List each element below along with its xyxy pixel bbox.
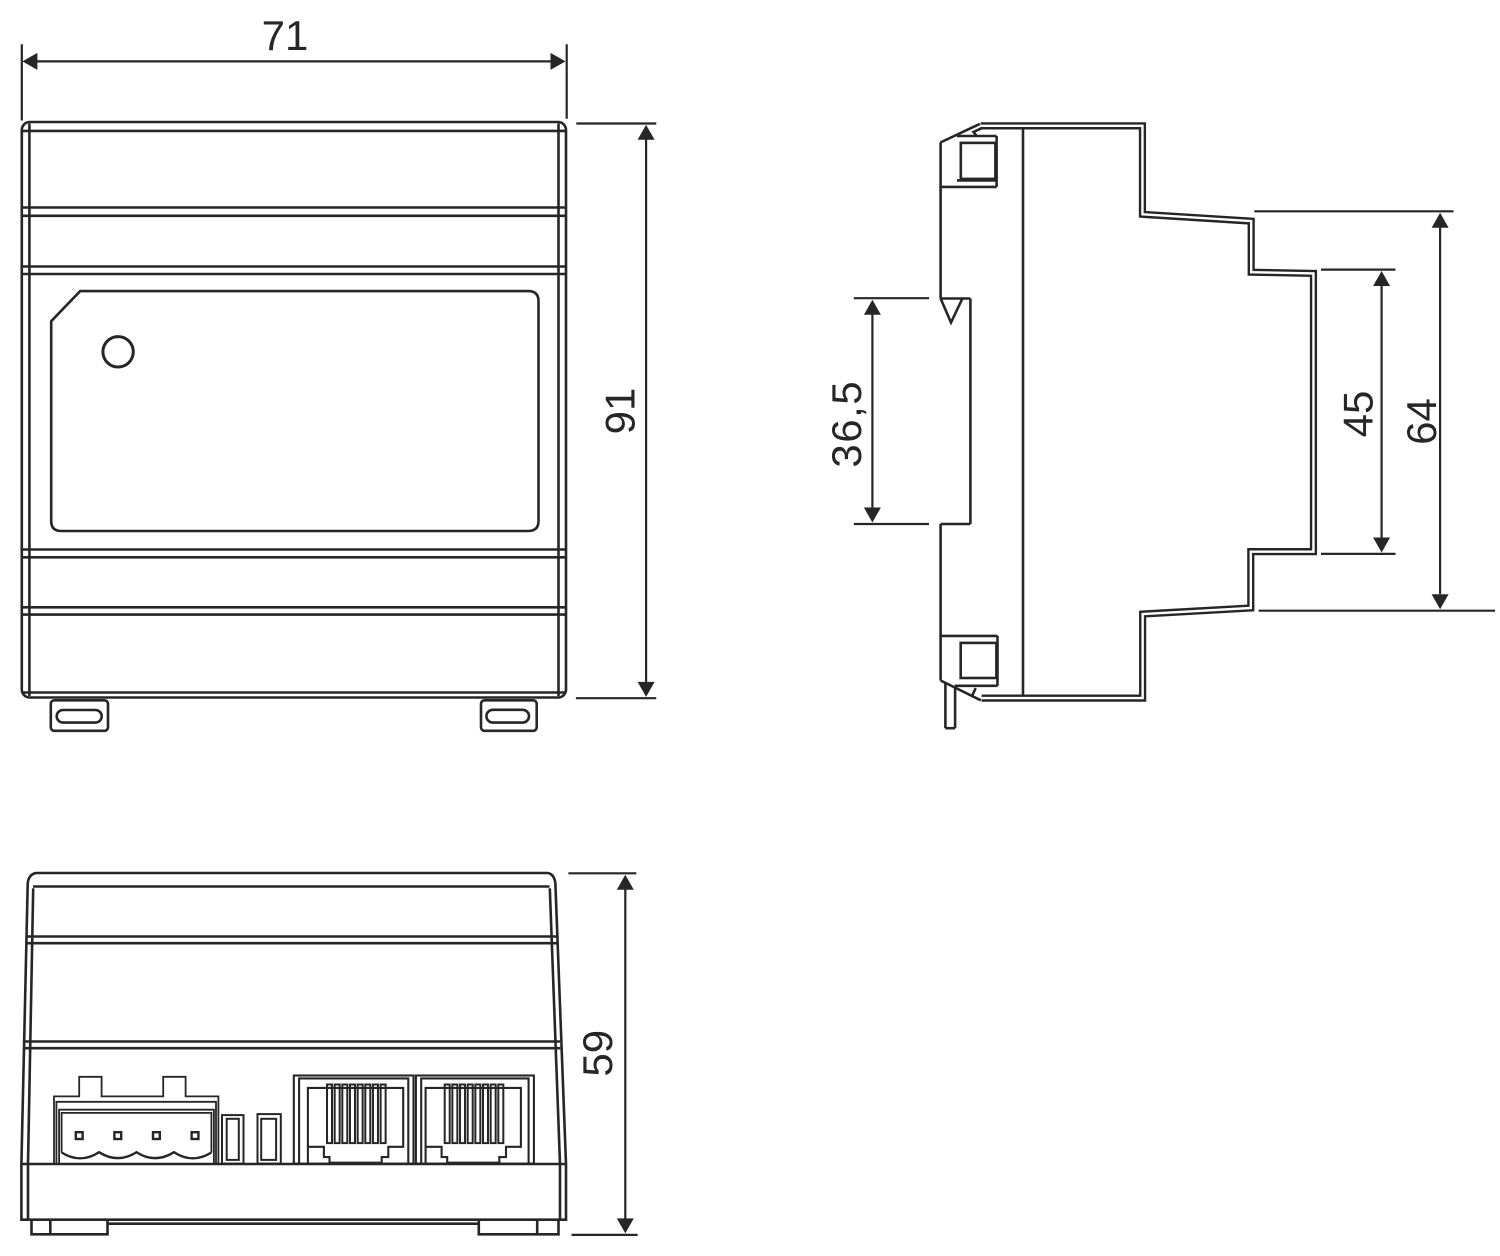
svg-text:91: 91: [597, 388, 644, 435]
svg-text:36,5: 36,5: [823, 380, 870, 468]
svg-text:71: 71: [262, 12, 309, 59]
svg-text:64: 64: [1398, 398, 1445, 445]
svg-text:59: 59: [574, 1030, 621, 1077]
svg-text:45: 45: [1335, 391, 1382, 438]
